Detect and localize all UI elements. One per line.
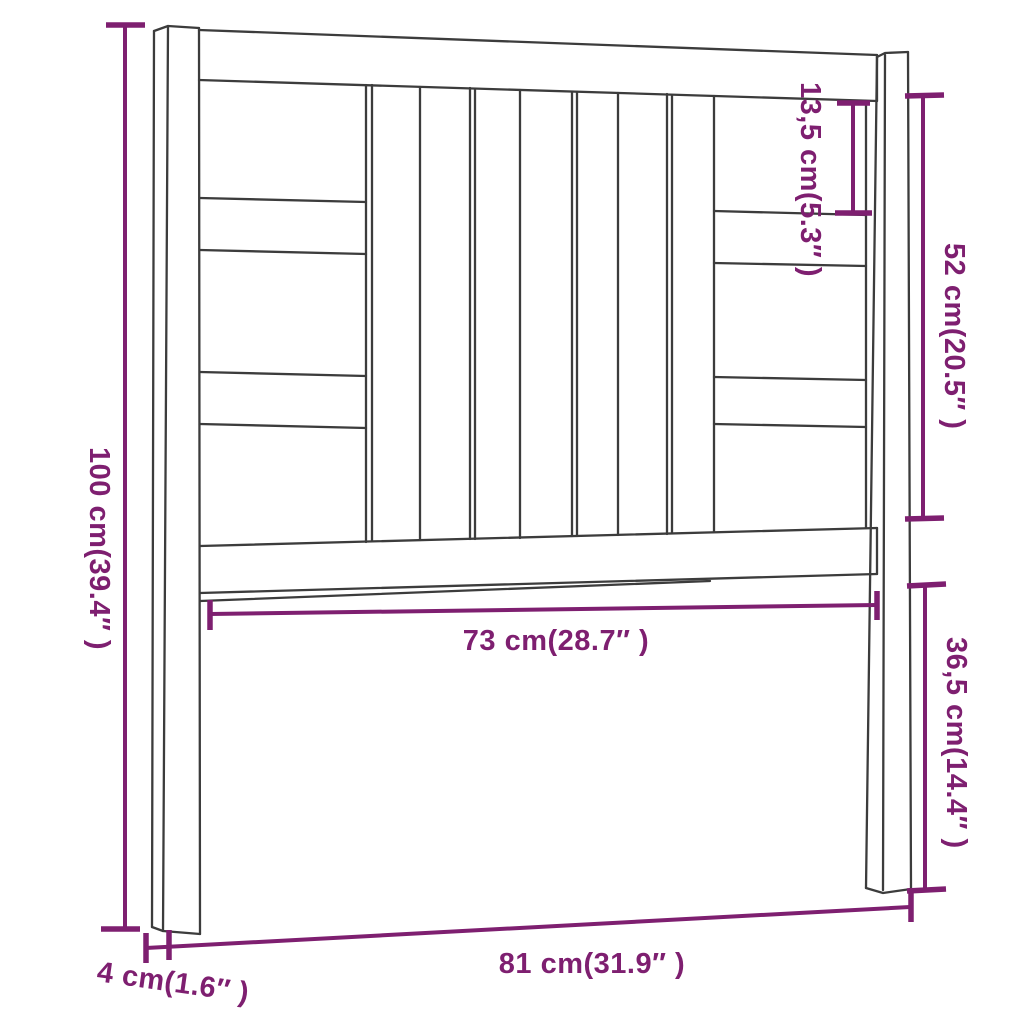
top-rail (199, 30, 877, 101)
dim-lower-leg-label: 36,5 cm(14.4″ ) (940, 637, 972, 849)
dim-total-width-label: 81 cm(31.9″ ) (499, 948, 685, 980)
left-post-back-edge (152, 31, 154, 927)
right-post-bottom-edge (866, 888, 911, 893)
dim-upper-panel-top-tick (905, 95, 944, 96)
right-post-left-edge (866, 57, 877, 888)
slats (366, 85, 866, 542)
dimension-upper-panel: 52 cm(20.5″ ) (905, 95, 970, 519)
right-lower-rail-bottom (714, 424, 866, 427)
dimension-lower-leg: 36,5 cm(14.4″ ) (907, 584, 972, 891)
right-post-top-edge (877, 52, 908, 57)
dim-inner-width-line (210, 605, 877, 614)
dim-total-height-label: 100 cm(39.4″ ) (83, 447, 115, 650)
dim-total-width-line (146, 907, 910, 948)
left-post-top-edge (154, 26, 199, 31)
left-upper-rail-bottom (200, 250, 366, 254)
right-post-front-edge (883, 55, 885, 890)
dimension-total-width: 81 cm(31.9″ ) 4 cm(1.6″ ) (95, 893, 911, 1009)
top-rail-bottom-edge (199, 80, 877, 101)
bottom-rail (200, 528, 877, 601)
left-post-bottom-edge (152, 927, 200, 934)
right-side-rails (714, 211, 866, 427)
left-post (152, 26, 200, 934)
left-upper-rail-top (200, 198, 366, 202)
right-post-right-edge (908, 52, 911, 889)
dim-top-gap-label: 13,5 cm(5.3″ ) (794, 82, 826, 277)
dimension-top-gap: 13,5 cm(5.3″ ) (794, 82, 872, 277)
screenshot-canvas: 100 cm(39.4″ ) 13,5 cm(5.3″ ) 52 cm(20.5… (0, 0, 1024, 1024)
dimension-inner-width: 73 cm(28.7″ ) (210, 591, 877, 657)
right-lower-rail-top (714, 377, 866, 380)
right-post (866, 52, 911, 893)
dim-inner-width-label: 73 cm(28.7″ ) (463, 625, 649, 657)
bottom-rail-bottom-edge (200, 574, 877, 593)
left-side-rails (200, 198, 366, 428)
dim-post-thickness-label: 4 cm(1.6″ ) (95, 956, 251, 1009)
dimension-annotations: 100 cm(39.4″ ) 13,5 cm(5.3″ ) 52 cm(20.5… (83, 25, 972, 1009)
bottom-rail-top-edge (200, 528, 877, 546)
left-lower-rail-bottom (200, 424, 366, 428)
headboard-dimension-diagram: 100 cm(39.4″ ) 13,5 cm(5.3″ ) 52 cm(20.5… (0, 0, 1024, 1024)
dim-upper-panel-label: 52 cm(20.5″ ) (938, 243, 970, 429)
right-upper-rail-bottom (714, 263, 866, 266)
top-rail-top-edge (199, 30, 877, 55)
dim-upper-panel-bottom-tick (905, 518, 944, 519)
dim-lower-leg-top-tick (907, 584, 946, 586)
left-lower-rail-top (200, 372, 366, 376)
left-post-front-right-edge (199, 28, 200, 934)
dim-lower-leg-bottom-tick (907, 889, 946, 891)
left-post-front-left-edge (163, 26, 168, 931)
dimension-total-height: 100 cm(39.4″ ) (83, 25, 145, 929)
